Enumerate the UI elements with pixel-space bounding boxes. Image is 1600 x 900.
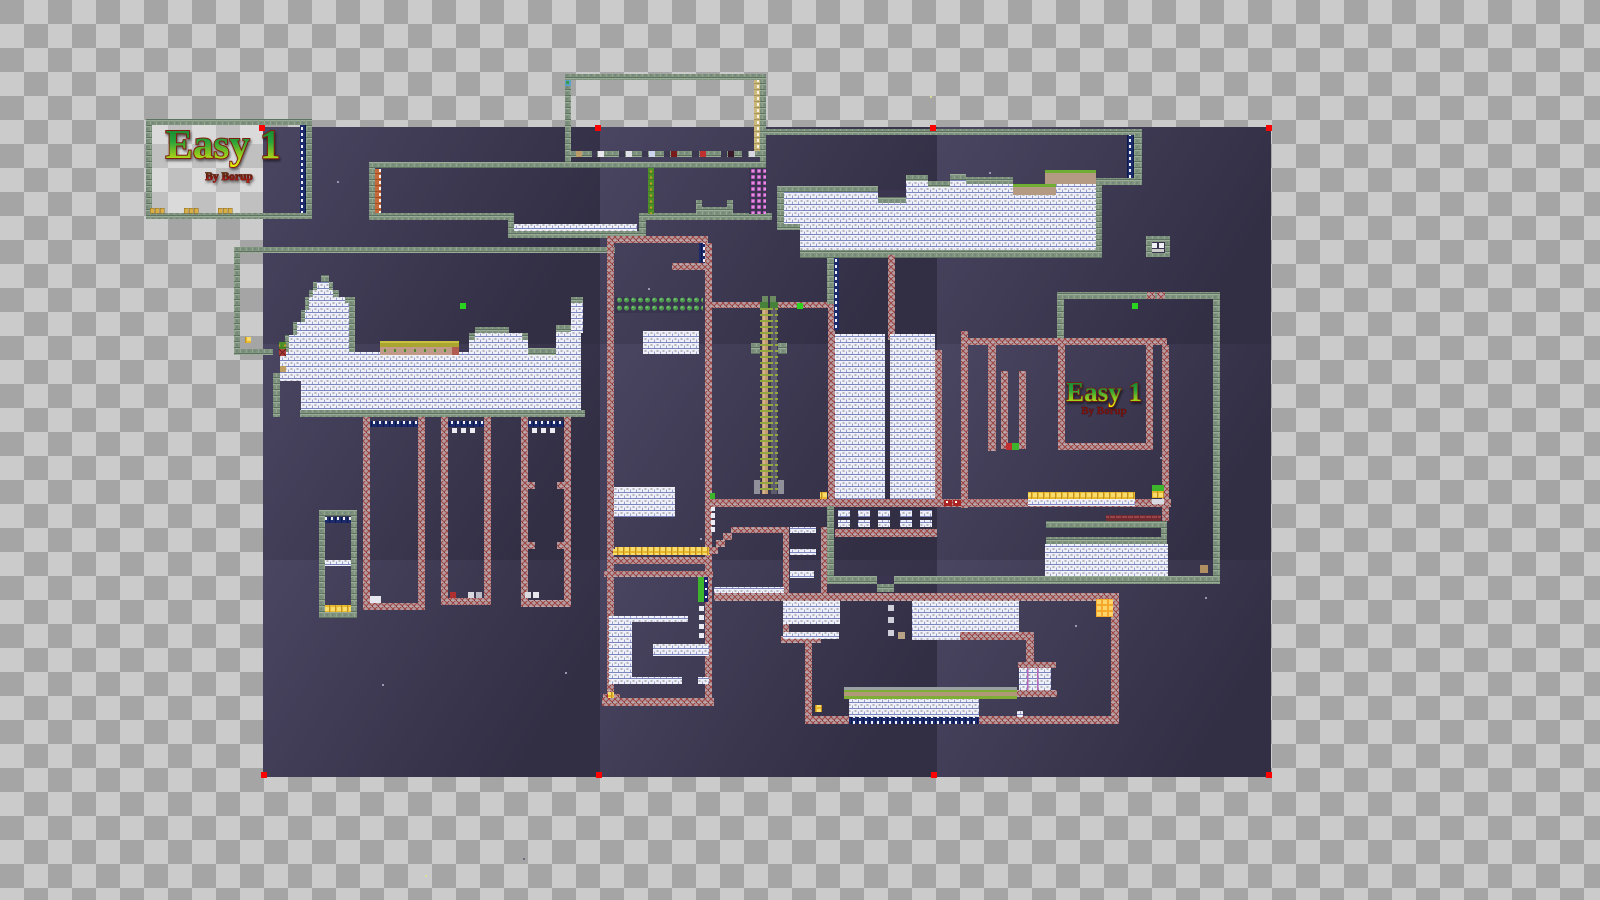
svg-text:By Borup: By Borup <box>205 171 253 183</box>
svg-text:Easy 1: Easy 1 <box>1066 377 1142 407</box>
svg-text:By Borup: By Borup <box>1081 405 1127 417</box>
